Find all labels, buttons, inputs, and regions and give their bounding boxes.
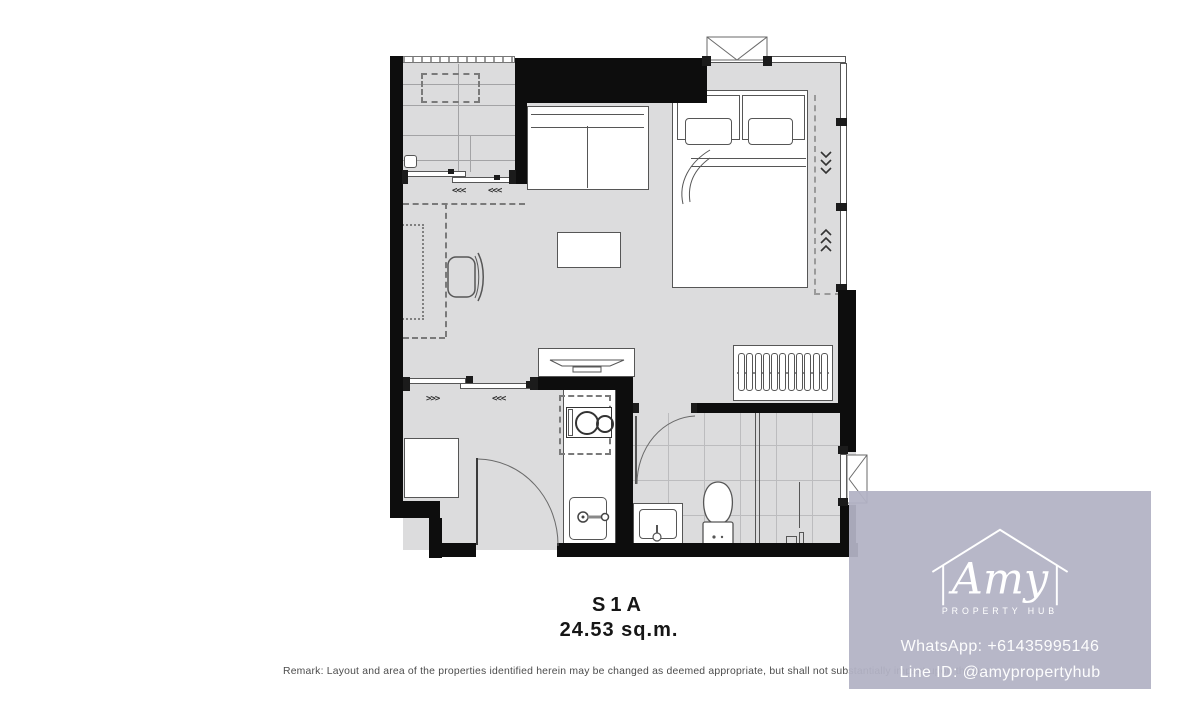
wall	[390, 56, 403, 518]
tv	[548, 358, 626, 376]
window-jamb	[838, 446, 848, 454]
hanger	[796, 353, 803, 391]
watermark-panel: Amy PROPERTY HUB WhatsApp: +61435995146 …	[849, 491, 1151, 689]
hanger	[771, 353, 778, 391]
wall	[429, 543, 476, 557]
brand-tagline: PROPERTY HUB	[942, 606, 1058, 616]
floorplan-page: <<< <<<	[0, 0, 1200, 712]
wall	[616, 387, 633, 550]
slide-direction-marker: <<<	[492, 394, 505, 404]
entry-door-swing	[478, 458, 562, 548]
door-jamb	[403, 377, 410, 391]
burner-small	[596, 415, 614, 433]
unit-name: S1A	[459, 594, 779, 617]
hall-sliding-door-panel	[460, 383, 532, 389]
door-handle	[448, 169, 454, 174]
wardrobe-hangers	[738, 353, 828, 391]
hanger	[763, 353, 770, 391]
bedroom-side-window	[840, 63, 847, 295]
door-jamb	[691, 403, 697, 413]
wall	[523, 58, 707, 103]
floor-drain	[404, 155, 417, 168]
vanity-faucet	[652, 524, 662, 542]
sliding-panel-track-dashed	[814, 293, 841, 295]
window-slide-chevrons-up	[819, 229, 833, 255]
unit-caption: S1A 24.53 sq.m.	[459, 594, 779, 642]
window-jamb	[763, 56, 772, 66]
balcony-sliding-door-panel	[452, 177, 516, 183]
desk-outline-dashed	[403, 203, 525, 205]
awning-window-symbol	[706, 36, 768, 62]
door-jamb	[633, 403, 639, 413]
door-jamb	[402, 170, 408, 184]
pillow	[685, 118, 732, 145]
hanger	[738, 353, 745, 391]
hanger	[788, 353, 795, 391]
hanger	[804, 353, 811, 391]
stove-knobs	[568, 409, 573, 436]
window-mullion	[836, 118, 847, 126]
chair	[442, 250, 486, 304]
coffee-table	[557, 232, 621, 268]
bathroom-door-swing	[637, 414, 699, 486]
hanger	[746, 353, 753, 391]
wall	[697, 403, 840, 413]
brand-logo: Amy PROPERTY HUB	[915, 521, 1085, 619]
floor-plan: <<< <<<	[390, 36, 868, 566]
shower-glass-partition	[755, 413, 760, 550]
window-jamb	[702, 56, 711, 66]
window-jamb	[838, 498, 848, 506]
wall	[838, 290, 856, 413]
desk-outline-dashed	[403, 337, 445, 339]
slide-direction-marker: <<<	[452, 186, 465, 196]
sofa-seat-divider	[587, 126, 588, 188]
hanger	[779, 353, 786, 391]
shower-fixture	[799, 482, 800, 528]
window-mullion	[836, 203, 847, 211]
pillow	[748, 118, 793, 145]
ac-condenser-outline	[421, 73, 480, 103]
slide-direction-marker: >>>	[426, 394, 439, 404]
door-handle	[494, 175, 500, 180]
toilet	[700, 480, 736, 550]
balcony-louver-strip	[402, 56, 515, 63]
brand-script: Amy	[948, 555, 1049, 605]
contact-line-id: Line ID: @amypropertyhub	[849, 664, 1151, 682]
blanket-fold	[674, 148, 712, 206]
washing-machine	[404, 438, 459, 498]
contact-whatsapp: WhatsApp: +61435995146	[849, 638, 1151, 656]
balcony-line	[470, 135, 471, 172]
hall-sliding-door-panel	[404, 378, 466, 384]
sliding-panel-track-dashed	[814, 95, 816, 295]
door-handle	[466, 376, 473, 383]
door-jamb	[530, 377, 538, 390]
sink-faucet	[576, 510, 610, 524]
window-slide-chevrons-down	[819, 151, 833, 177]
unit-area: 24.53 sq.m.	[459, 619, 779, 642]
wall	[403, 501, 440, 518]
hanger	[813, 353, 820, 391]
slide-direction-marker: <<<	[488, 186, 501, 196]
door-jamb	[509, 170, 516, 184]
wall	[557, 543, 858, 557]
hanger	[821, 353, 828, 391]
hanger	[755, 353, 762, 391]
